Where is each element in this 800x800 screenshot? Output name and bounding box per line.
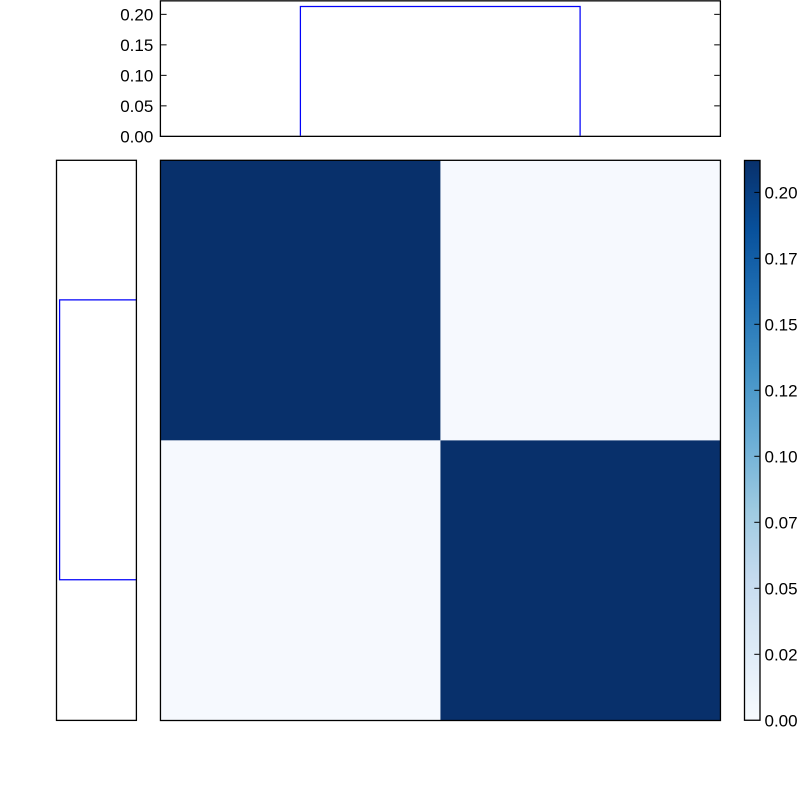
svg-text:0.10: 0.10 — [765, 447, 798, 466]
svg-text:0.10: 0.10 — [120, 66, 153, 85]
svg-text:0.02: 0.02 — [765, 645, 798, 664]
svg-text:0.15: 0.15 — [120, 36, 153, 55]
svg-text:0.20: 0.20 — [120, 5, 153, 24]
svg-text:0.05: 0.05 — [120, 97, 153, 116]
svg-text:0.12: 0.12 — [765, 381, 798, 400]
svg-text:0.00: 0.00 — [765, 711, 798, 730]
svg-text:0.07: 0.07 — [765, 513, 798, 532]
svg-text:0.05: 0.05 — [765, 579, 798, 598]
svg-text:0.20: 0.20 — [765, 184, 798, 203]
svg-text:0.15: 0.15 — [765, 315, 798, 334]
svg-text:0.17: 0.17 — [765, 249, 798, 268]
svg-text:0.00: 0.00 — [120, 127, 153, 146]
